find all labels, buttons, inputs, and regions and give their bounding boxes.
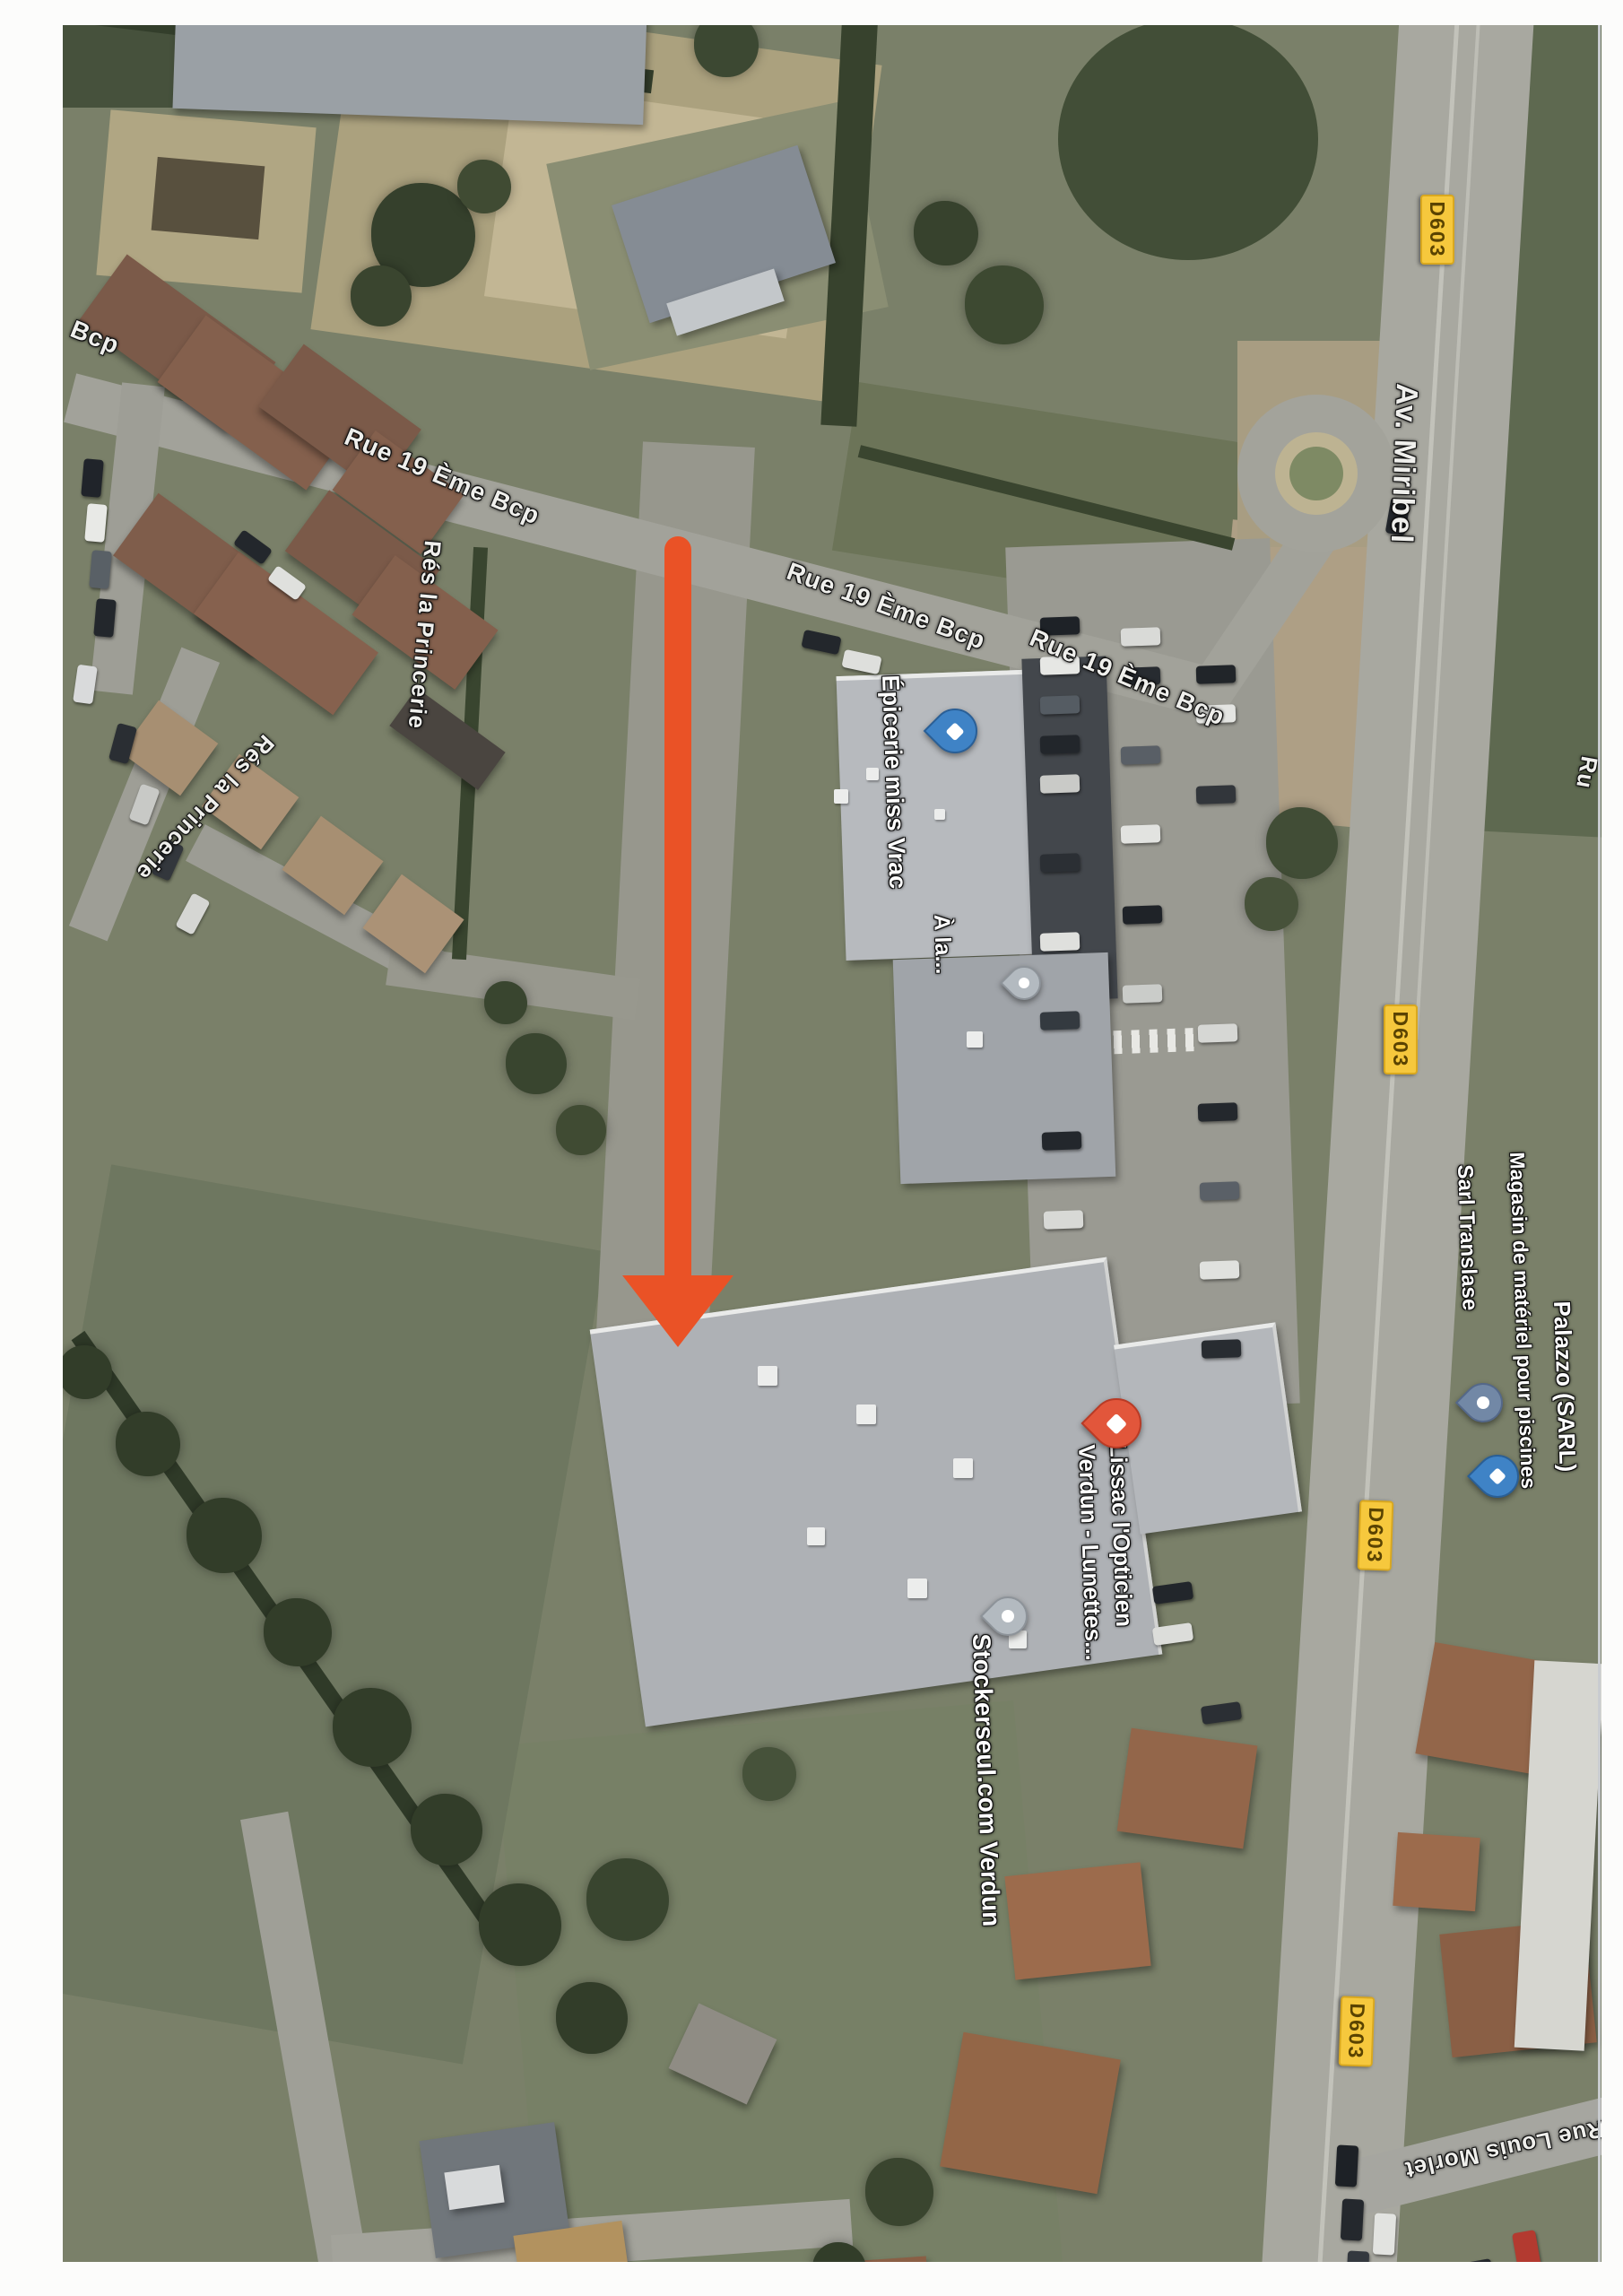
pin-store-icon bbox=[945, 721, 964, 740]
car bbox=[1123, 905, 1163, 925]
tree bbox=[965, 265, 1044, 344]
satellite-map: BcpRue 19 Ème BcpRue 19 Ème BcpRue 19 Èm… bbox=[0, 0, 1623, 2296]
page-margin-top bbox=[0, 0, 1623, 25]
building bbox=[1393, 1832, 1480, 1911]
tree bbox=[556, 1982, 628, 2054]
roof-vent bbox=[807, 1527, 825, 1545]
car bbox=[841, 649, 881, 674]
car bbox=[1341, 2198, 1364, 2240]
car bbox=[81, 458, 104, 498]
tree bbox=[914, 201, 978, 265]
car bbox=[1335, 2144, 1358, 2187]
poi-label: Sarl Translase bbox=[1452, 1164, 1482, 1311]
car bbox=[1040, 1011, 1081, 1031]
tree bbox=[865, 2158, 933, 2226]
car bbox=[1040, 695, 1081, 715]
page-margin-left bbox=[0, 0, 63, 2296]
car bbox=[73, 665, 98, 705]
car bbox=[1044, 1210, 1084, 1230]
tree bbox=[484, 981, 527, 1024]
tree bbox=[351, 265, 412, 326]
pin-dot-icon bbox=[1474, 1394, 1492, 1412]
tree bbox=[556, 1105, 606, 1155]
roof-vent bbox=[856, 1405, 876, 1424]
tree bbox=[506, 1033, 567, 1094]
car bbox=[175, 892, 210, 935]
map-surface bbox=[152, 157, 265, 239]
orange-arrow-head bbox=[622, 1275, 733, 1347]
car bbox=[1121, 824, 1161, 844]
car bbox=[1200, 1181, 1240, 1201]
car bbox=[1202, 1339, 1242, 1359]
tree bbox=[457, 160, 511, 213]
roof-vent bbox=[967, 1031, 983, 1048]
roof-vent bbox=[758, 1366, 777, 1386]
car bbox=[1196, 665, 1237, 684]
scanned-page: BcpRue 19 Ème BcpRue 19 Ème BcpRue 19 Èm… bbox=[0, 0, 1623, 2296]
car bbox=[1123, 984, 1163, 1004]
tree bbox=[586, 1858, 669, 1941]
scan-edge-line bbox=[1598, 25, 1601, 2262]
terrain-blob bbox=[1289, 447, 1343, 500]
building bbox=[444, 2165, 504, 2210]
pin-store-icon bbox=[1488, 1467, 1506, 1485]
tree bbox=[479, 1883, 561, 1966]
car bbox=[1201, 1701, 1242, 1725]
route-badge-d603: D603 bbox=[1420, 195, 1454, 265]
car bbox=[1040, 774, 1081, 794]
car bbox=[1200, 1260, 1240, 1280]
car bbox=[1373, 2213, 1396, 2255]
tree bbox=[333, 1688, 412, 1767]
street-label: Av. Miribel bbox=[1384, 382, 1424, 544]
route-badge-d603: D603 bbox=[1339, 1996, 1376, 2066]
car bbox=[1040, 932, 1081, 952]
car bbox=[1121, 745, 1161, 765]
map-pin-sarl-translase bbox=[1455, 1375, 1511, 1431]
tree bbox=[58, 1345, 112, 1399]
car bbox=[1198, 1102, 1238, 1122]
page-margin-right bbox=[1601, 0, 1623, 2296]
roof-vent bbox=[907, 1578, 927, 1598]
roof-vent bbox=[953, 1458, 973, 1478]
roof-vent bbox=[866, 768, 879, 780]
orange-arrow-shaft bbox=[664, 536, 691, 1277]
route-badge-d603: D603 bbox=[1358, 1500, 1394, 1570]
car bbox=[1196, 785, 1237, 804]
tree bbox=[264, 1598, 332, 1666]
building bbox=[1004, 1862, 1150, 1979]
car bbox=[84, 503, 108, 543]
page-margin-bottom bbox=[0, 2262, 1623, 2296]
car bbox=[93, 598, 117, 638]
tree bbox=[116, 1412, 180, 1476]
pin-dot-icon bbox=[1017, 976, 1032, 991]
poi-label: Magasin de matériel pour piscines bbox=[1505, 1152, 1541, 1490]
poi-label: Palazzo (SARL) bbox=[1548, 1300, 1582, 1473]
car bbox=[1152, 1581, 1193, 1605]
car bbox=[1040, 853, 1081, 873]
tree bbox=[742, 1747, 796, 1801]
tree bbox=[411, 1794, 482, 1865]
tree bbox=[187, 1498, 262, 1573]
pin-dot-icon bbox=[999, 1607, 1017, 1625]
terrain-blob bbox=[1058, 18, 1318, 260]
route-badge-d603: D603 bbox=[1384, 1004, 1418, 1074]
car bbox=[1198, 1023, 1238, 1043]
roof-vent bbox=[834, 789, 848, 804]
poi-label: À la... bbox=[928, 914, 956, 975]
car bbox=[801, 630, 841, 655]
car bbox=[1121, 627, 1161, 647]
car bbox=[1042, 1131, 1082, 1151]
roof-vent bbox=[934, 809, 945, 820]
building bbox=[1117, 1728, 1258, 1849]
pin-store-icon bbox=[1106, 1413, 1127, 1434]
car bbox=[89, 550, 112, 589]
car bbox=[1040, 735, 1081, 754]
building bbox=[940, 2032, 1121, 2195]
tree bbox=[1266, 807, 1338, 879]
tree bbox=[1245, 877, 1298, 931]
